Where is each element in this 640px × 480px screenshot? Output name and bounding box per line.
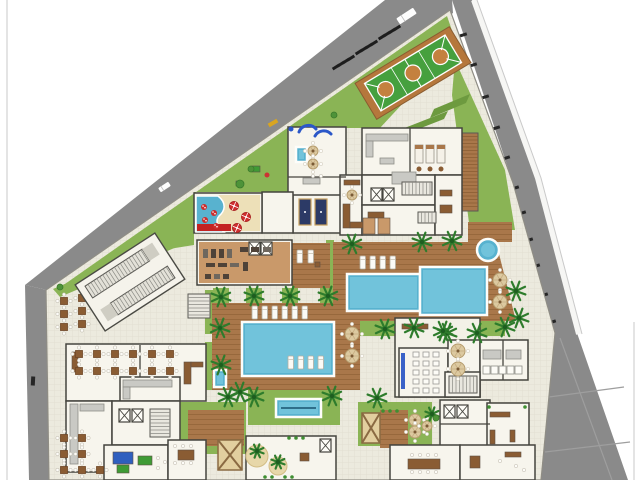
- chair: [150, 363, 153, 366]
- curb-mark-left-road: [31, 376, 35, 385]
- pergola-southwest: [218, 440, 242, 470]
- furniture-brown-item: [470, 456, 480, 468]
- chair-dots-dot: [434, 453, 437, 456]
- palm-trunk: [517, 316, 521, 320]
- furniture-brown-item: [510, 430, 515, 442]
- chair: [80, 462, 83, 465]
- lounger-bed: [360, 256, 366, 269]
- chair: [56, 325, 59, 328]
- palm-trunk: [350, 242, 354, 246]
- chair: [466, 349, 469, 352]
- gym-machine: [227, 249, 232, 258]
- elevator: [119, 409, 130, 422]
- counter: [380, 158, 394, 164]
- chair: [168, 359, 171, 362]
- palm-trunk: [503, 325, 507, 329]
- palm-trunk: [219, 295, 223, 299]
- chair: [102, 352, 105, 355]
- chair: [77, 359, 80, 362]
- chair: [319, 162, 322, 165]
- main-pool-deep: [420, 267, 487, 315]
- massage-beds: [415, 145, 445, 163]
- sun-lounger: [360, 256, 366, 269]
- chair: [80, 430, 83, 433]
- gym-machine: [240, 247, 248, 252]
- chair: [446, 349, 449, 352]
- plant-dots-dot: [487, 405, 491, 409]
- gym-machine: [219, 249, 224, 258]
- chair: [80, 446, 83, 449]
- umbrella-pole: [414, 431, 417, 434]
- chair: [456, 357, 459, 360]
- chair-dots-dot: [189, 444, 192, 447]
- chair: [360, 332, 363, 335]
- chair: [87, 452, 90, 455]
- counter: [506, 350, 521, 359]
- table: [112, 351, 119, 358]
- chair: [144, 352, 147, 355]
- sun-lounger: [298, 356, 304, 369]
- beach-umbrella: [233, 224, 242, 233]
- chair: [311, 141, 314, 144]
- palm-trunk: [375, 396, 379, 400]
- chair: [350, 344, 353, 347]
- chair: [417, 424, 420, 427]
- cinema-seat: [413, 352, 419, 357]
- cinema-seat: [433, 388, 439, 393]
- palm-trunk: [288, 294, 292, 298]
- stairs-walkway-west: [188, 294, 210, 318]
- plant-dots-dot: [287, 436, 291, 440]
- spa-round-pool-water: [481, 243, 495, 257]
- umbrella-pole: [499, 301, 502, 304]
- chair: [89, 369, 92, 372]
- toadstool-seat: [213, 223, 219, 229]
- chair: [80, 329, 83, 332]
- cinema-screen: [401, 353, 405, 389]
- chair: [107, 352, 110, 355]
- playground-dot: [265, 173, 270, 178]
- sun-lounger: [390, 256, 396, 269]
- beach-umbrella-pole: [236, 227, 238, 229]
- table: [149, 368, 156, 375]
- table: [167, 368, 174, 375]
- stall: [515, 366, 522, 374]
- cinema-seat: [433, 379, 439, 384]
- bush: [236, 180, 244, 188]
- chair: [413, 439, 416, 442]
- bush: [248, 166, 254, 172]
- elevator: [320, 439, 331, 452]
- toadstool-spot: [216, 226, 218, 228]
- pingpong-tables-item: [117, 465, 129, 473]
- water-toy-dot: [289, 127, 294, 132]
- elevator: [132, 409, 143, 422]
- umbrella-pole: [312, 150, 315, 153]
- chair-dots-dot: [434, 470, 437, 473]
- chair: [77, 363, 80, 366]
- table: [61, 435, 68, 442]
- chair: [157, 369, 160, 372]
- chair: [162, 369, 165, 372]
- chair: [342, 193, 345, 196]
- table: [61, 467, 68, 474]
- lounger-bed: [262, 306, 268, 319]
- chair: [168, 376, 171, 379]
- main-pool-shallow: [347, 274, 420, 311]
- palm-trunk: [412, 326, 416, 330]
- palm-trunk: [450, 239, 454, 243]
- umbrella-pole: [351, 355, 354, 358]
- chair: [80, 475, 83, 478]
- chair: [113, 363, 116, 366]
- sun-lounger: [252, 306, 258, 319]
- chair: [303, 149, 306, 152]
- stall: [507, 366, 514, 374]
- lounger-bed: [308, 250, 314, 263]
- chair: [144, 369, 147, 372]
- chair: [488, 300, 491, 303]
- elevator: [444, 405, 455, 418]
- lounger-bed: [288, 356, 294, 369]
- table: [76, 351, 83, 358]
- toadstool-cap: [211, 210, 217, 216]
- chair: [131, 346, 134, 349]
- lounger-bed: [282, 306, 288, 319]
- furniture-brown-item: [505, 452, 521, 457]
- beach-umbrella-pole: [245, 216, 247, 218]
- furniture-brown-item: [490, 412, 510, 417]
- chair: [56, 312, 59, 315]
- chair: [62, 475, 65, 478]
- counter: [303, 178, 320, 184]
- floor-plan-image: [0, 0, 640, 480]
- chair: [95, 346, 98, 349]
- chair: [125, 369, 128, 372]
- sun-lounger: [282, 306, 288, 319]
- furniture-brown-item: [343, 204, 350, 228]
- table: [76, 368, 83, 375]
- chair: [92, 468, 95, 471]
- chair: [150, 346, 153, 349]
- plant-dots-dot: [290, 475, 294, 479]
- chair-dots-dot: [181, 444, 184, 447]
- sun-lounger: [297, 250, 303, 263]
- toadstool-cap: [201, 204, 207, 210]
- chair: [168, 363, 171, 366]
- furniture-brown-item: [350, 222, 364, 228]
- games-tables: [113, 452, 133, 464]
- toadstool-seat: [201, 204, 207, 210]
- chair: [125, 352, 128, 355]
- umbrella-pole: [457, 350, 460, 353]
- cinema-seat: [433, 352, 439, 357]
- bush: [433, 415, 439, 421]
- chair: [56, 436, 59, 439]
- gym-machine: [205, 274, 211, 279]
- counter: [483, 350, 501, 359]
- bleacher-lawn-strip: [478, 140, 488, 216]
- table: [61, 324, 68, 331]
- palm-trunk: [441, 329, 445, 333]
- toadstool-spot: [203, 218, 205, 220]
- chair: [113, 346, 116, 349]
- cinema-seat: [413, 379, 419, 384]
- gym-machine: [206, 263, 215, 267]
- palm-trunk: [255, 449, 259, 453]
- garden-deck-southeast: [380, 410, 408, 448]
- umbrella-pole: [426, 425, 429, 428]
- chair: [62, 446, 65, 449]
- chair-dots-dot: [522, 468, 525, 471]
- plant-dots-dot: [523, 405, 527, 409]
- pingpong-tables-item: [138, 456, 152, 465]
- chair: [150, 359, 153, 362]
- plant-dots-dot: [283, 475, 287, 479]
- furniture-brown-item: [191, 362, 203, 367]
- chair: [84, 369, 87, 372]
- massage-pillow: [426, 145, 434, 149]
- chair: [498, 268, 501, 271]
- chair: [350, 364, 353, 367]
- table: [130, 368, 137, 375]
- main-pool-deep-water: [423, 270, 484, 312]
- chair: [358, 193, 361, 196]
- chair: [350, 322, 353, 325]
- chair: [62, 293, 65, 296]
- tatami-mats-item: [378, 218, 390, 234]
- beach-umbrella-pole: [233, 205, 235, 207]
- furniture-brown-item: [440, 205, 452, 213]
- chair: [413, 409, 416, 412]
- gym-machine: [203, 249, 208, 258]
- sun-lounger: [262, 306, 268, 319]
- floor-plan-page: [0, 0, 640, 480]
- counter: [366, 141, 373, 157]
- furniture-brown-item: [344, 180, 360, 185]
- chair: [62, 430, 65, 433]
- chair: [95, 359, 98, 362]
- lounger-bed: [370, 256, 376, 269]
- chair: [131, 363, 134, 366]
- furniture-brown-item: [184, 362, 191, 384]
- chair: [466, 367, 469, 370]
- sun-lounger: [308, 250, 314, 263]
- chair: [87, 322, 90, 325]
- table: [61, 298, 68, 305]
- chair-dots-dot: [514, 464, 517, 467]
- gym-machine: [218, 263, 227, 267]
- chair: [71, 369, 74, 372]
- sun-lounger: [380, 256, 386, 269]
- chair: [456, 339, 459, 342]
- chair: [113, 376, 116, 379]
- changing-stalls: [483, 366, 522, 374]
- chair: [102, 369, 105, 372]
- gym-machine: [230, 263, 239, 267]
- chair: [69, 325, 72, 328]
- furniture-brown-item: [300, 453, 309, 461]
- lounger-bed: [272, 306, 278, 319]
- toadstool-spot: [204, 207, 206, 209]
- chair: [446, 367, 449, 370]
- chair: [87, 436, 90, 439]
- table: [94, 368, 101, 375]
- chair: [84, 352, 87, 355]
- chair-dots-dot: [181, 461, 184, 464]
- sun-lounger: [288, 356, 294, 369]
- palm-trunk: [219, 363, 223, 367]
- beach-umbrella: [230, 202, 239, 211]
- table: [97, 467, 104, 474]
- gym-machine: [211, 249, 216, 258]
- furniture-brown-item: [178, 450, 194, 460]
- chair-dots-dot: [163, 460, 166, 463]
- chair: [74, 296, 77, 299]
- plant-dots-dot: [263, 475, 267, 479]
- table: [79, 435, 86, 442]
- cinema-seat: [433, 361, 439, 366]
- cinema-seat: [413, 388, 419, 393]
- stairs-core-top: [402, 182, 432, 195]
- cinema-seat: [423, 370, 429, 375]
- table: [61, 451, 68, 458]
- stairs-room-east-top: [418, 212, 436, 223]
- chair-dots-dot: [173, 444, 176, 447]
- cinema-seat: [423, 379, 429, 384]
- massage-pillow: [437, 145, 445, 149]
- cinema-seat: [413, 361, 419, 366]
- umbrella-pole: [312, 163, 315, 166]
- lounger-bed: [308, 356, 314, 369]
- toadstool-seat: [202, 217, 208, 223]
- gym-machine: [251, 247, 259, 252]
- chair: [404, 418, 407, 421]
- palm-trunk: [430, 412, 434, 416]
- counter: [123, 387, 130, 399]
- table: [94, 351, 101, 358]
- toadstool-spot: [214, 224, 216, 226]
- plant-dots-dot: [381, 409, 385, 413]
- chair-dots-dot: [156, 466, 159, 469]
- massage-stools: [417, 167, 444, 172]
- chair: [74, 468, 77, 471]
- chair: [69, 468, 72, 471]
- gym-machine: [214, 274, 220, 279]
- toadstool-cap: [202, 217, 208, 223]
- chair: [74, 309, 77, 312]
- palm-trunk: [226, 395, 230, 399]
- toadstool-spot: [205, 220, 207, 222]
- umbrella-pole: [351, 194, 354, 197]
- stall: [499, 366, 506, 374]
- furniture-brown-item: [440, 190, 452, 196]
- floor-plan-root: [0, 0, 640, 480]
- plant-dots-dot: [270, 475, 274, 479]
- table: [61, 311, 68, 318]
- chair: [80, 303, 83, 306]
- chair: [319, 149, 322, 152]
- stall: [483, 366, 490, 374]
- lounger-bed: [252, 306, 258, 319]
- chair: [87, 309, 90, 312]
- lounger-bed: [380, 256, 386, 269]
- chair: [56, 468, 59, 471]
- chair: [98, 475, 101, 478]
- chair: [488, 278, 491, 281]
- gym-machine: [243, 262, 248, 271]
- sun-lounger: [292, 306, 298, 319]
- chair: [150, 376, 153, 379]
- stairs-room-east-top: [418, 212, 436, 223]
- stairs-core-top: [402, 182, 432, 195]
- chair: [62, 462, 65, 465]
- plant-dots-dot: [388, 409, 392, 413]
- chair: [350, 185, 353, 188]
- palm-trunk: [276, 460, 280, 464]
- chair: [120, 352, 123, 355]
- counter: [366, 134, 408, 141]
- chair: [360, 354, 363, 357]
- massage-stools-dot: [428, 167, 433, 172]
- bush: [57, 284, 63, 290]
- table: [167, 351, 174, 358]
- counter: [123, 380, 172, 387]
- chair: [311, 154, 314, 157]
- chair: [77, 346, 80, 349]
- chair: [69, 436, 72, 439]
- table: [149, 351, 156, 358]
- massage-stools-dot: [417, 167, 422, 172]
- toadstool-seat: [211, 210, 217, 216]
- palm-trunk: [475, 331, 479, 335]
- plant-dots-dot: [301, 436, 305, 440]
- chair: [95, 363, 98, 366]
- chair: [138, 352, 141, 355]
- chair: [303, 162, 306, 165]
- chair: [162, 352, 165, 355]
- lounger-bed: [302, 306, 308, 319]
- chair: [77, 376, 80, 379]
- chair: [131, 376, 134, 379]
- chair: [74, 452, 77, 455]
- stairs-east: [449, 376, 477, 393]
- gym-machine: [223, 274, 229, 279]
- chair: [74, 322, 77, 325]
- chair-dots-dot: [311, 174, 314, 177]
- palm-trunk: [238, 390, 242, 394]
- plant-dots-dot: [395, 409, 399, 413]
- billiard-ball: [304, 211, 306, 213]
- chair: [138, 369, 141, 372]
- chair: [340, 332, 343, 335]
- furniture-brown-item: [315, 262, 320, 267]
- stairs-core-west: [150, 409, 170, 437]
- sun-lounger: [308, 356, 314, 369]
- chair: [107, 369, 110, 372]
- chair: [157, 352, 160, 355]
- cinema-seat: [423, 352, 429, 357]
- umbrella-pole: [499, 279, 502, 282]
- palm-trunk: [383, 327, 387, 331]
- palm-trunk: [252, 294, 256, 298]
- main-pool-shallow-water: [350, 277, 417, 308]
- toadstool-cap: [213, 223, 219, 229]
- tatami-mats-item: [363, 218, 375, 234]
- chair: [56, 452, 59, 455]
- chair: [120, 369, 123, 372]
- chair: [498, 290, 501, 293]
